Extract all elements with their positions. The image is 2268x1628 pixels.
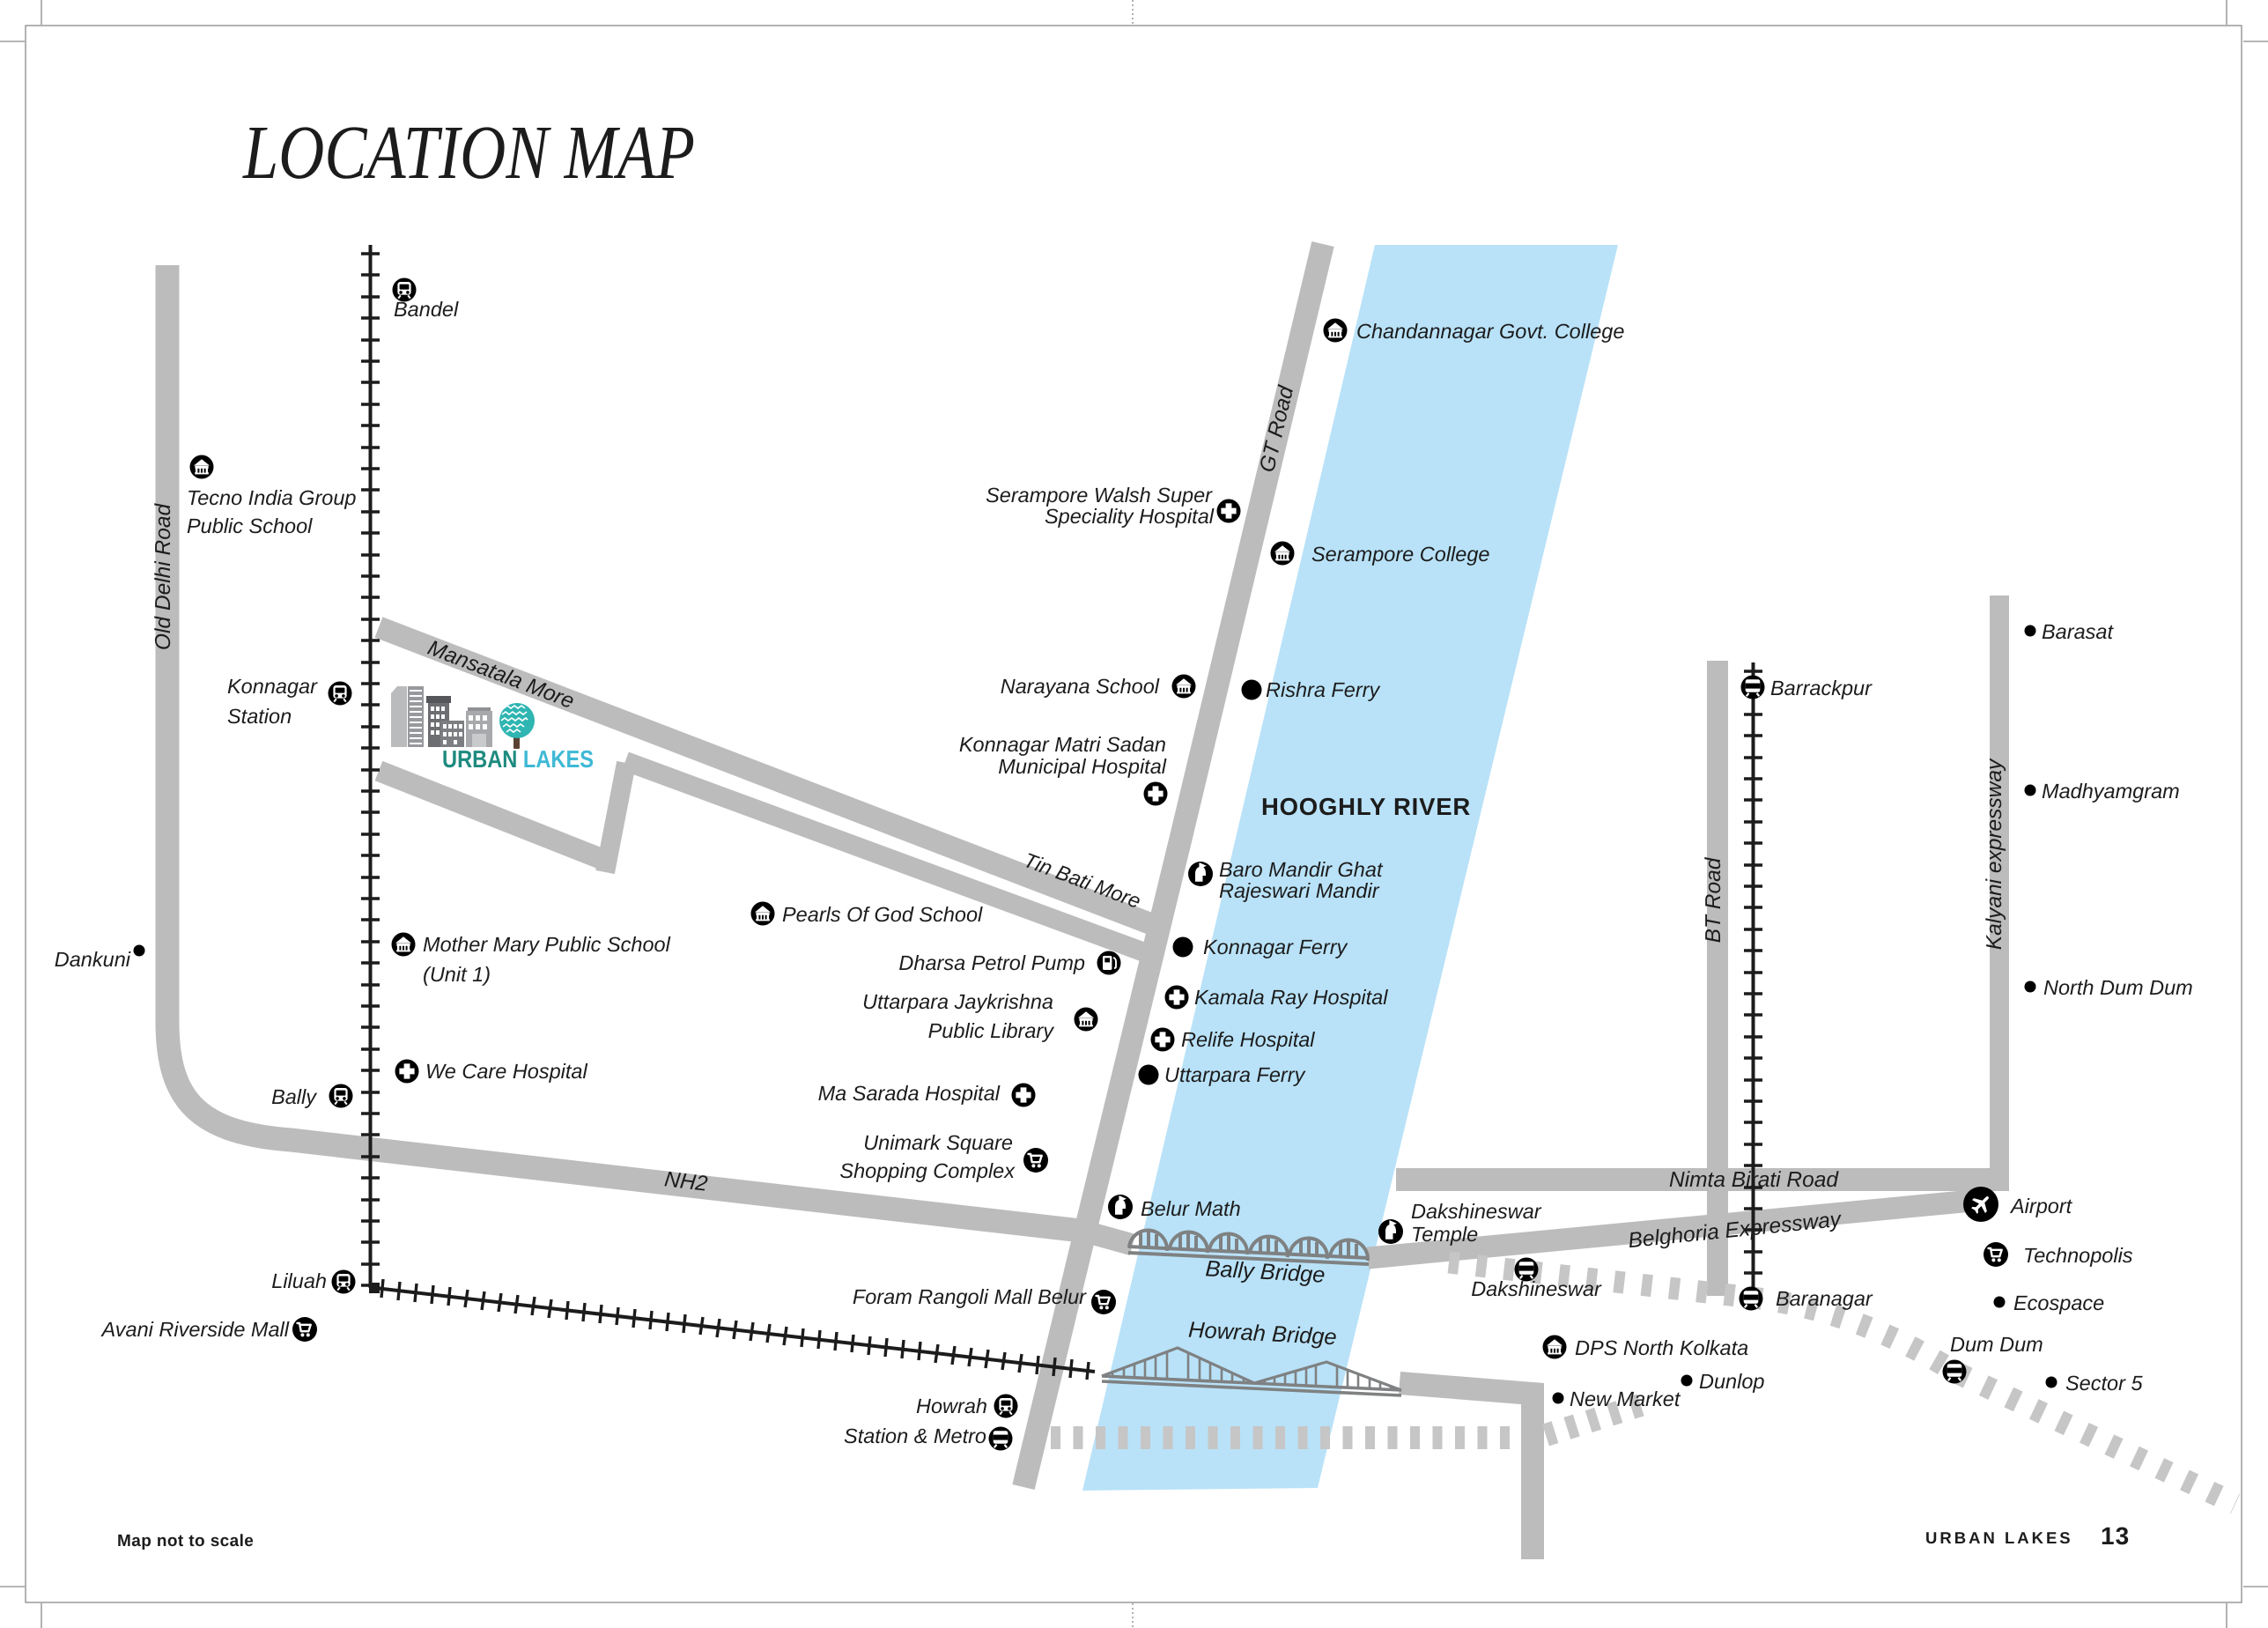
svg-text:We Care Hospital: We Care Hospital (425, 1060, 587, 1083)
svg-text:Temple: Temple (1411, 1223, 1478, 1246)
svg-text:Airport: Airport (2009, 1195, 2073, 1217)
svg-text:HOOGHLY RIVER: HOOGHLY RIVER (1261, 793, 1471, 820)
svg-text:Unimark Square: Unimark Square (863, 1131, 1013, 1154)
svg-text:Dum Dum: Dum Dum (1950, 1333, 2043, 1356)
svg-text:Station: Station (227, 705, 292, 728)
svg-text:Map not to scale: Map not to scale (117, 1532, 254, 1550)
svg-text:Municipal Hospital: Municipal Hospital (998, 755, 1166, 778)
svg-text:Liluah: Liluah (271, 1269, 327, 1292)
svg-text:DPS North Kolkata: DPS North Kolkata (1575, 1336, 1748, 1359)
svg-text:Uttarpara Ferry: Uttarpara Ferry (1164, 1063, 1306, 1086)
svg-text:New Market: New Market (1570, 1387, 1681, 1410)
svg-text:13: 13 (2101, 1522, 2130, 1550)
svg-text:Technopolis: Technopolis (2023, 1244, 2133, 1267)
svg-text:Old Delhi Road: Old Delhi Road (151, 503, 175, 651)
svg-text:LOCATION MAP: LOCATION MAP (241, 109, 695, 195)
svg-text:Sector 5: Sector 5 (2065, 1372, 2143, 1395)
svg-text:Ma Sarada Hospital: Ma Sarada Hospital (818, 1082, 1001, 1105)
svg-text:Baranagar: Baranagar (1776, 1287, 1873, 1310)
svg-text:Tecno India Group: Tecno India Group (187, 486, 357, 509)
svg-text:Dunlop: Dunlop (1699, 1370, 1764, 1393)
svg-text:Kamala Ray Hospital: Kamala Ray Hospital (1194, 986, 1388, 1009)
svg-text:Konnagar Ferry: Konnagar Ferry (1203, 936, 1348, 958)
svg-text:Rishra Ferry: Rishra Ferry (1266, 678, 1381, 701)
svg-text:Station & Metro: Station & Metro (844, 1424, 986, 1447)
svg-text:Belur Math: Belur Math (1141, 1197, 1241, 1220)
svg-text:URBAN LAKES: URBAN LAKES (442, 745, 594, 773)
svg-text:Pearls Of God School: Pearls Of God School (782, 903, 983, 926)
svg-text:Dankuni: Dankuni (55, 948, 131, 971)
svg-text:Dharsa Petrol Pump: Dharsa Petrol Pump (898, 951, 1085, 974)
svg-text:Barasat: Barasat (2042, 620, 2114, 643)
svg-text:Mother Mary Public School: Mother Mary Public School (423, 933, 671, 956)
svg-text:Dakshineswar: Dakshineswar (1471, 1277, 1602, 1300)
svg-text:BT Road: BT Road (1702, 856, 1725, 943)
svg-text:Chandannagar Govt. College: Chandannagar Govt. College (1356, 320, 1624, 343)
svg-text:Baro Mandir Ghat: Baro Mandir Ghat (1219, 858, 1384, 881)
svg-text:Shopping Complex: Shopping Complex (839, 1159, 1016, 1182)
svg-text:URBAN LAKES: URBAN LAKES (1925, 1528, 2073, 1547)
svg-text:Narayana School: Narayana School (1001, 675, 1160, 698)
svg-text:Kalyani expressway: Kalyani expressway (1983, 758, 2006, 950)
svg-text:Bally: Bally (271, 1085, 317, 1108)
svg-text:Public School: Public School (187, 514, 313, 537)
svg-text:Nimta Birati Road: Nimta Birati Road (1669, 1168, 1839, 1192)
svg-text:Relife Hospital: Relife Hospital (1181, 1028, 1315, 1051)
svg-text:Howrah: Howrah (916, 1395, 987, 1417)
svg-text:Bandel: Bandel (394, 298, 459, 321)
svg-text:Konnagar: Konnagar (227, 675, 318, 698)
svg-text:Foram Rangoli Mall Belur: Foram Rangoli Mall Belur (853, 1285, 1087, 1308)
svg-text:Rajeswari Mandir: Rajeswari Mandir (1219, 879, 1380, 902)
svg-text:North Dum Dum: North Dum Dum (2043, 976, 2193, 999)
svg-text:Konnagar Matri Sadan: Konnagar Matri Sadan (959, 733, 1166, 756)
svg-text:Avani Riverside Mall: Avani Riverside Mall (100, 1318, 290, 1341)
svg-text:Speciality Hospital: Speciality Hospital (1045, 505, 1215, 528)
svg-text:(Unit 1): (Unit 1) (423, 963, 491, 986)
svg-text:Madhyamgram: Madhyamgram (2042, 780, 2180, 803)
svg-text:Dakshineswar: Dakshineswar (1411, 1200, 1542, 1223)
svg-text:Public Library: Public Library (928, 1019, 1055, 1042)
svg-text:Serampore College: Serampore College (1311, 543, 1489, 566)
svg-text:Ecospace: Ecospace (2013, 1291, 2104, 1314)
svg-text:Uttarpara Jaykrishna: Uttarpara Jaykrishna (862, 990, 1053, 1013)
svg-text:Barrackpur: Barrackpur (1770, 677, 1873, 699)
svg-text:Serampore Walsh Super: Serampore Walsh Super (986, 484, 1213, 507)
